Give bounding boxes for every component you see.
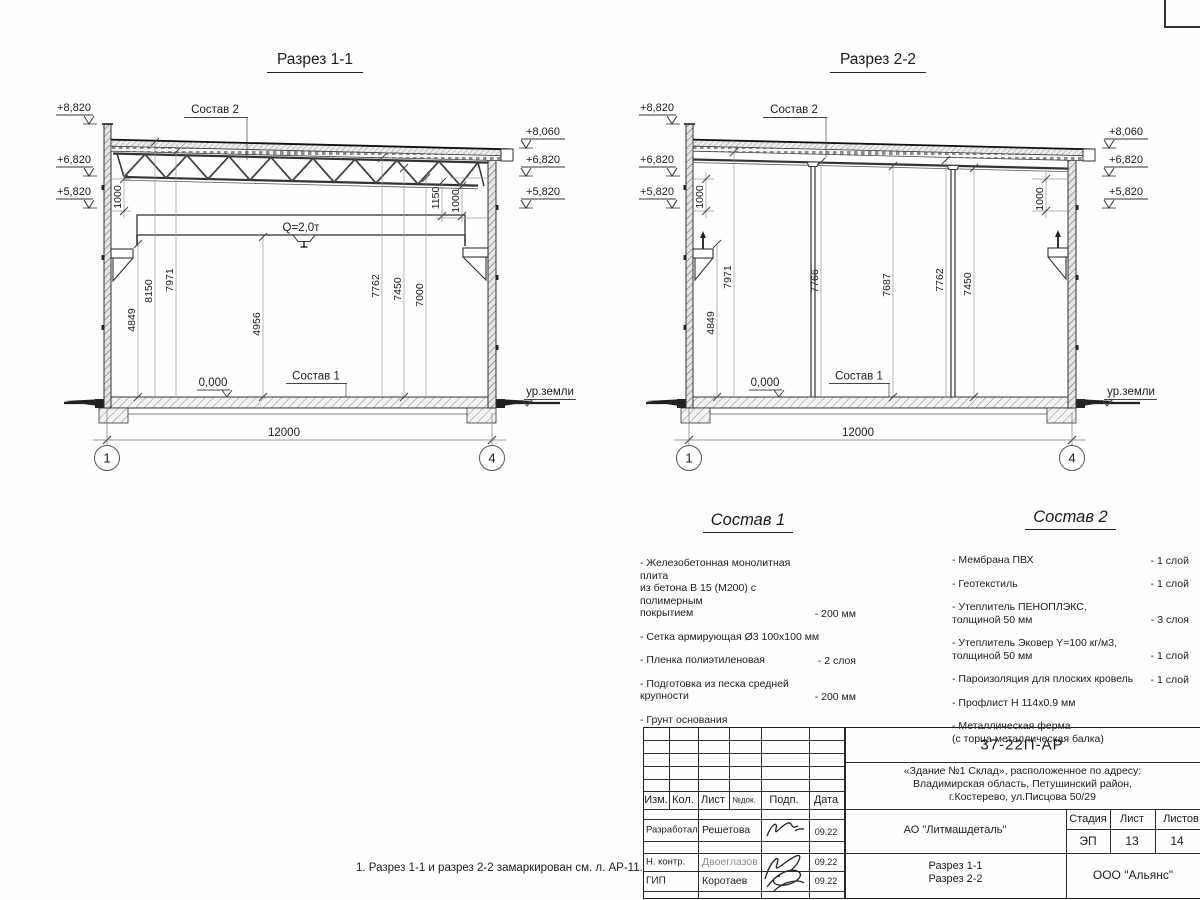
span-label: 12000 [842, 427, 874, 439]
section-2-2: 4849 7971 7766 7687 7762 7450 1000 1000 … [639, 51, 1157, 471]
drawing-title: Разрез 1-1 Разрез 2-2 [845, 860, 1066, 886]
name-ncontrol: Двоеглазов [702, 856, 758, 868]
svg-text:1000: 1000 [1034, 187, 1046, 211]
stage-value: ЭП [1079, 834, 1096, 848]
svg-text:7762: 7762 [370, 274, 382, 298]
svg-text:+5,820: +5,820 [640, 186, 674, 198]
axis-bubbles: 1 4 [95, 446, 505, 471]
svg-text:7450: 7450 [962, 272, 974, 296]
sheets-total: 14 [1170, 834, 1183, 848]
zero-level-label: 0,000 [751, 377, 780, 389]
signature-developer [764, 820, 806, 840]
ground-level-label: ур.земли [526, 386, 574, 398]
layer-item: - Утеплитель ПЕНОПЛЭКС, толщиной 50 мм- … [952, 601, 1189, 626]
grid-line [1110, 809, 1111, 853]
section-2-title: Разрез 2-2 [840, 51, 916, 68]
layer-item: - Подготовка из песка средней крупности-… [640, 678, 856, 703]
svg-text:4: 4 [488, 451, 495, 466]
svg-text:7971: 7971 [164, 268, 176, 292]
composition-1-title: Состав 1 [703, 511, 793, 533]
dimension-labels: 4849 8150 7971 4956 7762 7450 7000 1000 … [112, 185, 462, 336]
col-izm: Изм. [644, 794, 668, 806]
svg-text:8150: 8150 [143, 279, 155, 303]
sostav2-callout: Состав 2 [191, 104, 239, 116]
role-ncontrol: Н. контр. [646, 857, 685, 868]
grid-line [644, 891, 845, 892]
object-address: «Здание №1 Склад», расположенное по адре… [845, 765, 1200, 804]
floor-slab [677, 397, 1085, 423]
svg-text:1000: 1000 [450, 189, 462, 213]
svg-text:+6,820: +6,820 [640, 154, 674, 166]
svg-text:1150: 1150 [430, 187, 442, 210]
col-list: Лист [701, 794, 725, 806]
name-gip: Коротаев [702, 875, 747, 887]
floor-slab [95, 397, 505, 423]
doc-number: 37-22П-АР [980, 737, 1063, 754]
dimension-labels: 4849 7971 7766 7687 7762 7450 1000 1000 [694, 185, 1046, 335]
crane-capacity-label: Q=2,0т [283, 222, 321, 234]
svg-text:7687: 7687 [881, 273, 893, 297]
svg-text:+6,820: +6,820 [57, 154, 91, 166]
organization-name: ООО "Альянс" [1093, 868, 1173, 882]
layer-item: - Сетка армирующая Ø3 100х100 мм [640, 631, 856, 644]
sostav1-callout: Состав 1 [292, 371, 340, 383]
company-name: АО "Литмашдеталь" [904, 824, 1007, 836]
svg-text:1000: 1000 [694, 185, 706, 209]
sheet-number: 13 [1125, 834, 1138, 848]
svg-text:+5,820: +5,820 [526, 186, 560, 198]
grid-line [644, 809, 1200, 810]
col-podp: Подп. [769, 794, 798, 806]
svg-text:1: 1 [685, 451, 692, 466]
svg-text:4849: 4849 [705, 311, 717, 335]
role-developer: Разработал [646, 825, 698, 836]
dimension-ticks [702, 148, 1050, 401]
role-gip: ГИП [646, 876, 666, 887]
svg-text:7000: 7000 [414, 283, 426, 307]
svg-text:4956: 4956 [251, 312, 263, 336]
sostav1-callout: Состав 1 [835, 371, 883, 383]
svg-text:+6,820: +6,820 [1109, 154, 1143, 166]
signature-control-gip [760, 851, 810, 895]
composition-1-block: Состав 1 - Железобетонная монолитная пли… [640, 511, 856, 737]
grid-line [644, 819, 845, 820]
sostav2-callout: Состав 2 [770, 104, 818, 116]
grid-line [845, 762, 1200, 763]
grid-line [1155, 809, 1156, 853]
svg-text:+5,820: +5,820 [1109, 186, 1143, 198]
svg-text:1: 1 [103, 451, 110, 466]
col-kol: Кол. [672, 794, 694, 806]
roof-assembly [693, 140, 1095, 172]
layer-item: - Пароизоляция для плоских кровель- 1 сл… [952, 673, 1189, 686]
grid-line [644, 841, 845, 842]
walls [102, 124, 499, 408]
grid-line [644, 740, 845, 741]
composition-2-block: Состав 2 - Мембрана ПВХ- 1 слой - Геотек… [952, 508, 1189, 756]
callouts [749, 118, 1157, 407]
layer-item: - Грунт основания [640, 714, 856, 727]
col-dok: №док. [732, 796, 755, 805]
composition-2-title: Состав 2 [1025, 508, 1115, 530]
layer-item: - Пленка полиэтиленовая- 2 слоя [640, 654, 856, 667]
layer-item: - Утеплитель Эковер Y=100 кг/м3, толщино… [952, 637, 1189, 662]
grid-line [644, 871, 845, 872]
title-block: Изм. Кол. Лист №док. Подп. Дата Разработ… [643, 727, 1200, 899]
svg-text:+8,820: +8,820 [57, 102, 91, 114]
date-ncontrol: 09.22 [815, 857, 838, 867]
svg-text:+8,060: +8,060 [1109, 126, 1143, 138]
span-label: 12000 [268, 427, 300, 439]
svg-text:7766: 7766 [809, 269, 821, 293]
grid-line [644, 779, 845, 780]
sheet-note: 1. Разрез 1-1 и разрез 2-2 замаркирован … [356, 862, 643, 874]
col-data: Дата [814, 794, 838, 806]
sheets-label: Листов [1163, 813, 1199, 825]
layer-item: - Профлист Н 114х0.9 мм [952, 697, 1189, 710]
svg-text:+8,820: +8,820 [640, 102, 674, 114]
svg-text:7762: 7762 [934, 268, 946, 292]
drawing-sheet: Q=2,0т 4849 8 [0, 0, 1200, 900]
grid-line [644, 853, 1200, 854]
svg-text:+8,060: +8,060 [526, 126, 560, 138]
svg-text:4: 4 [1068, 451, 1075, 466]
grid-line [644, 766, 845, 767]
layer-item: - Геотекстиль- 1 слой [952, 578, 1189, 591]
ground-level-label: ур.земли [1107, 386, 1155, 398]
axis-bubbles: 1 4 [677, 446, 1085, 471]
section-1-1: Q=2,0т 4849 8 [56, 51, 576, 471]
date-developer: 09.22 [815, 827, 838, 837]
section-1-title: Разрез 1-1 [277, 51, 353, 68]
corbels [693, 230, 1068, 280]
grid-line [644, 791, 845, 792]
frame-corner-box [1164, 0, 1200, 28]
sheet-label: Лист [1120, 813, 1144, 825]
stage-label: Стадия [1069, 813, 1107, 825]
layer-item: - Мембрана ПВХ- 1 слой [952, 554, 1189, 567]
grid-line [644, 753, 845, 754]
svg-text:+5,820: +5,820 [57, 186, 91, 198]
svg-text:4849: 4849 [126, 308, 138, 332]
layer-item: - Железобетонная монолитная плита из бет… [640, 557, 856, 620]
date-gip: 09.22 [815, 876, 838, 886]
grid-line [1066, 829, 1200, 830]
name-developer: Решетова [702, 824, 750, 836]
svg-text:+6,820: +6,820 [526, 154, 560, 166]
svg-text:7971: 7971 [722, 265, 734, 289]
zero-level-label: 0,000 [199, 377, 228, 389]
svg-text:7450: 7450 [392, 277, 404, 301]
svg-text:1000: 1000 [112, 185, 124, 209]
